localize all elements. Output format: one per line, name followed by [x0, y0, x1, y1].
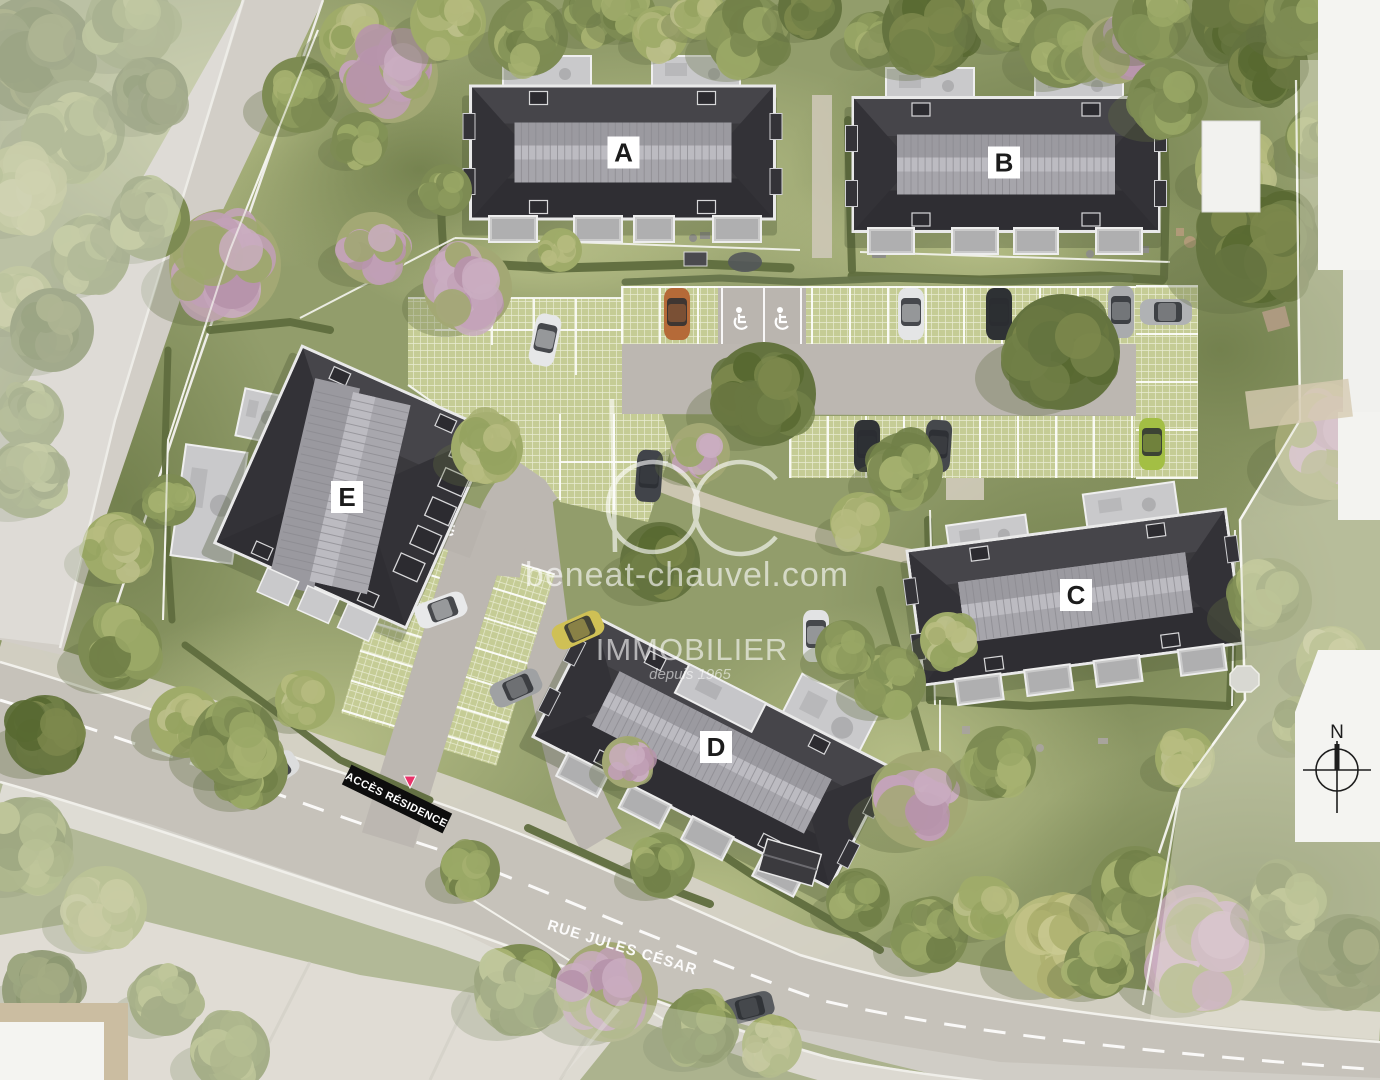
- svg-text:C: C: [1067, 580, 1086, 610]
- svg-text:A: A: [614, 138, 633, 168]
- svg-text:IMMOBILIER: IMMOBILIER: [596, 632, 789, 667]
- svg-text:B: B: [995, 148, 1014, 178]
- svg-text:beneat-chauvel.com: beneat-chauvel.com: [525, 556, 849, 594]
- svg-text:N: N: [1330, 722, 1344, 743]
- svg-text:depuis 1965: depuis 1965: [649, 666, 731, 683]
- svg-text:E: E: [338, 482, 355, 512]
- svg-text:D: D: [707, 732, 726, 762]
